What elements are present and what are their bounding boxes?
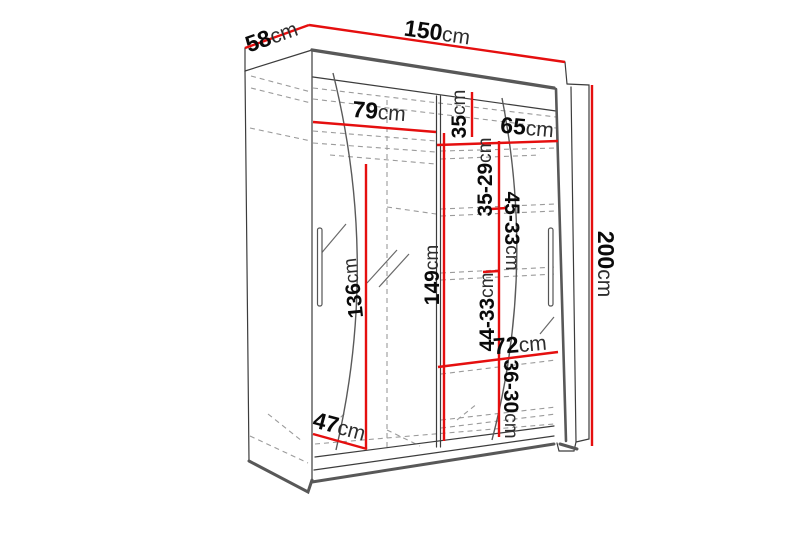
dim-label-45-33cm: 45-33cm: [500, 191, 523, 270]
diagram-svg: 58cm 150cm 200cm 79cm 35cm 65cm 35-29cm …: [0, 0, 800, 533]
dim-label-35-29cm: 35-29cm: [474, 137, 497, 216]
right-door-handle: [549, 228, 554, 306]
dim-label-35cm: 35cm: [448, 90, 471, 139]
dim-label-149cm: 149cm: [421, 245, 444, 305]
wardrobe-dimension-diagram: 58cm 150cm 200cm 79cm 35cm 65cm 35-29cm …: [0, 0, 800, 533]
left-door-handle: [318, 228, 323, 306]
dim-label-72cm: 72cm: [492, 329, 548, 360]
background: [0, 0, 800, 533]
dim-label-200cm: 200cm: [593, 231, 619, 297]
dim-label-36-30cm: 36-30cm: [499, 359, 522, 438]
